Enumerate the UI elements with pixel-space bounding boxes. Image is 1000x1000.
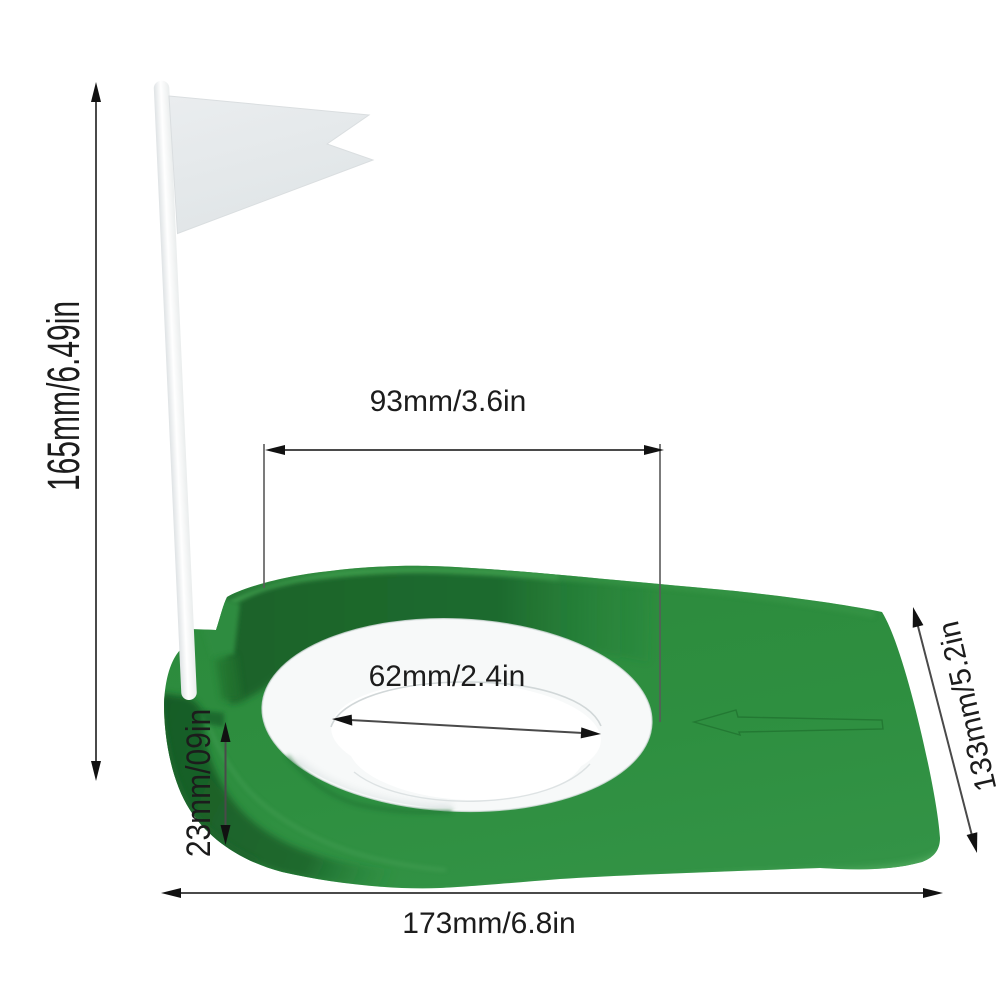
svg-text:165mm/6.49in: 165mm/6.49in — [39, 301, 90, 491]
svg-text:93mm/3.6in: 93mm/3.6in — [370, 385, 527, 418]
svg-text:62mm/2.4in: 62mm/2.4in — [369, 660, 526, 693]
svg-text:23mm/09in: 23mm/09in — [179, 709, 217, 857]
svg-text:173mm/6.8in: 173mm/6.8in — [402, 907, 575, 940]
svg-text:133mm/5.2in: 133mm/5.2in — [932, 618, 1000, 794]
